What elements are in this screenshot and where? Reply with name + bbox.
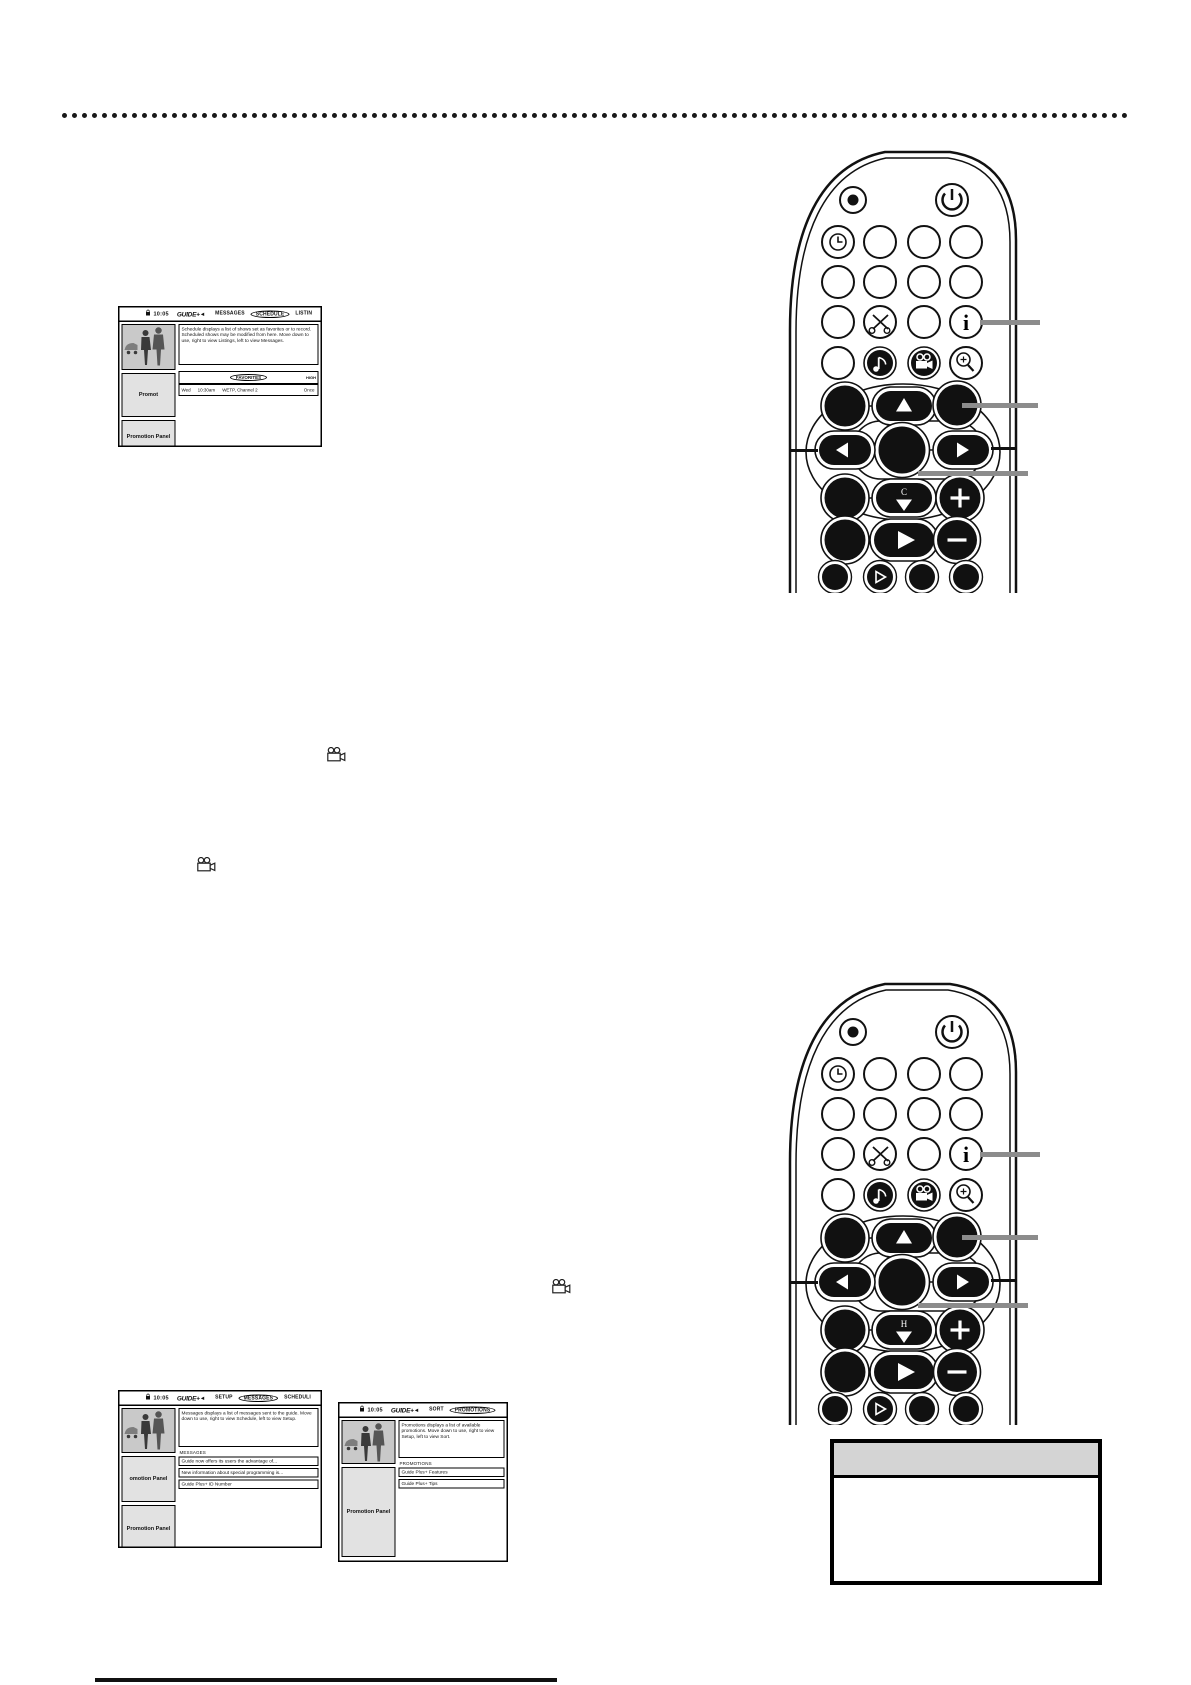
- tab-schedule: SCHEDULI: [284, 1394, 311, 1402]
- lock-icon: [146, 1394, 151, 1403]
- osd-clock: 10:05: [368, 1407, 383, 1413]
- remote-control-illustration-top: C: [735, 140, 1025, 593]
- promotion-row: Guide Plus+ Features: [399, 1468, 505, 1478]
- osd-header: 10:05 GUIDE+ ◀ SORT PROMOTIONS: [340, 1404, 507, 1419]
- osd-tabs: MESSAGES SCHEDULE LISTIN: [215, 310, 312, 318]
- callout-dpad-ring: [918, 471, 1028, 476]
- promo-photo: [122, 324, 176, 370]
- guide-plus-logo: GUIDE+: [391, 1406, 414, 1414]
- osd-clock: 10:05: [154, 311, 169, 317]
- callout-dpad-ring: [918, 1303, 1028, 1308]
- promo-photo: [122, 1408, 176, 1453]
- message-row: Guide now offers its users the advantage…: [179, 1457, 319, 1467]
- guide-plus-logo: GUIDE+: [177, 310, 200, 318]
- messages-section-label: MESSAGES: [180, 1450, 319, 1455]
- callout-tick-right: [991, 1279, 1015, 1282]
- screen-description: Messages displays a list of messages sen…: [179, 1408, 319, 1447]
- tab-messages-active: MESSAGES: [239, 1394, 279, 1402]
- fav-channel: WETP, Channel 2: [222, 388, 257, 393]
- callout-tick-right: [991, 447, 1015, 450]
- dotted-divider: [62, 113, 1128, 118]
- osd-clock: 10:05: [154, 1395, 169, 1401]
- promotion-panel-1: omotion Panel: [122, 1456, 176, 1502]
- camcorder-icon: [327, 747, 346, 762]
- tab-setup: SETUP: [215, 1394, 232, 1402]
- promotion-panel-2: Promotion Panel: [122, 420, 176, 447]
- favorites-label: FAVORITES: [230, 374, 267, 381]
- callout-info-button: [980, 320, 1040, 325]
- callout-round-button: [962, 1235, 1038, 1240]
- tab-promotions-active: PROMOTIONS: [450, 1406, 496, 1414]
- note-box: [830, 1439, 1102, 1585]
- camcorder-icon: [552, 1279, 571, 1294]
- screen-description: Schedule displays a list of shows set as…: [179, 324, 319, 365]
- down-button-letter: H: [901, 1319, 908, 1329]
- callout-info-button: [980, 1152, 1040, 1157]
- message-row: New information about special programmin…: [179, 1468, 319, 1478]
- manual-page: i: [0, 0, 1191, 1685]
- osd-header: 10:05 GUIDE+ ◀ SETUP MESSAGES SCHEDULI: [120, 1392, 321, 1407]
- callout-round-button: [962, 403, 1038, 408]
- fav-day: Wed: [182, 388, 191, 393]
- callout-tick-left: [790, 449, 818, 452]
- logo-arrow-icon: ◀: [201, 1395, 204, 1401]
- guide-plus-logo: GUIDE+: [177, 1394, 200, 1402]
- down-button-letter: C: [901, 487, 907, 497]
- tab-listings: LISTIN: [295, 310, 312, 318]
- promotion-row: Guide Plus+ Tips: [399, 1479, 505, 1489]
- promotion-panel-1: Promotion Panel: [342, 1467, 396, 1557]
- promotion-panel-1: Promot: [122, 373, 176, 417]
- favorites-bar: FAVORITES HIGH: [179, 371, 319, 384]
- tab-sort: SORT: [429, 1406, 443, 1414]
- logo-arrow-icon: ◀: [201, 311, 204, 317]
- screen-mockup-schedule: 10:05 GUIDE+ ◀ MESSAGES SCHEDULE LISTIN …: [118, 306, 322, 447]
- fav-time: 10:30am: [198, 388, 216, 393]
- page-edge-line: [95, 1678, 557, 1682]
- lock-icon: [146, 310, 151, 319]
- promotion-panel-2: Promotion Panel: [122, 1505, 176, 1548]
- priority-label: HIGH: [306, 375, 316, 380]
- promotions-section-label: PROMOTIONS: [400, 1461, 505, 1466]
- lock-icon: [360, 1406, 365, 1415]
- tab-schedule-active: SCHEDULE: [251, 310, 290, 318]
- osd-header: 10:05 GUIDE+ ◀ MESSAGES SCHEDULE LISTIN: [120, 308, 321, 323]
- osd-tabs: SETUP MESSAGES SCHEDULI: [215, 1394, 311, 1402]
- fav-frequency: Once: [304, 388, 315, 393]
- logo-arrow-icon: ◀: [415, 1407, 418, 1413]
- promo-photo: [342, 1420, 396, 1464]
- note-box-header: [834, 1443, 1098, 1478]
- remote-control-illustration-bottom: H: [735, 972, 1025, 1425]
- message-row: Guide Plus+ ID Number: [179, 1480, 319, 1490]
- screen-description: Promotions displays a list of available …: [399, 1420, 505, 1458]
- osd-tabs: SORT PROMOTIONS: [429, 1406, 495, 1414]
- tab-messages: MESSAGES: [215, 310, 245, 318]
- screen-mockup-promotions: 10:05 GUIDE+ ◀ SORT PROMOTIONS Promotion…: [338, 1402, 508, 1562]
- callout-tick-left: [790, 1281, 818, 1284]
- camcorder-icon: [197, 857, 216, 872]
- screen-mockup-messages: 10:05 GUIDE+ ◀ SETUP MESSAGES SCHEDULI o…: [118, 1390, 322, 1548]
- favorite-row: Wed 10:30am WETP, Channel 2 Once: [179, 384, 319, 396]
